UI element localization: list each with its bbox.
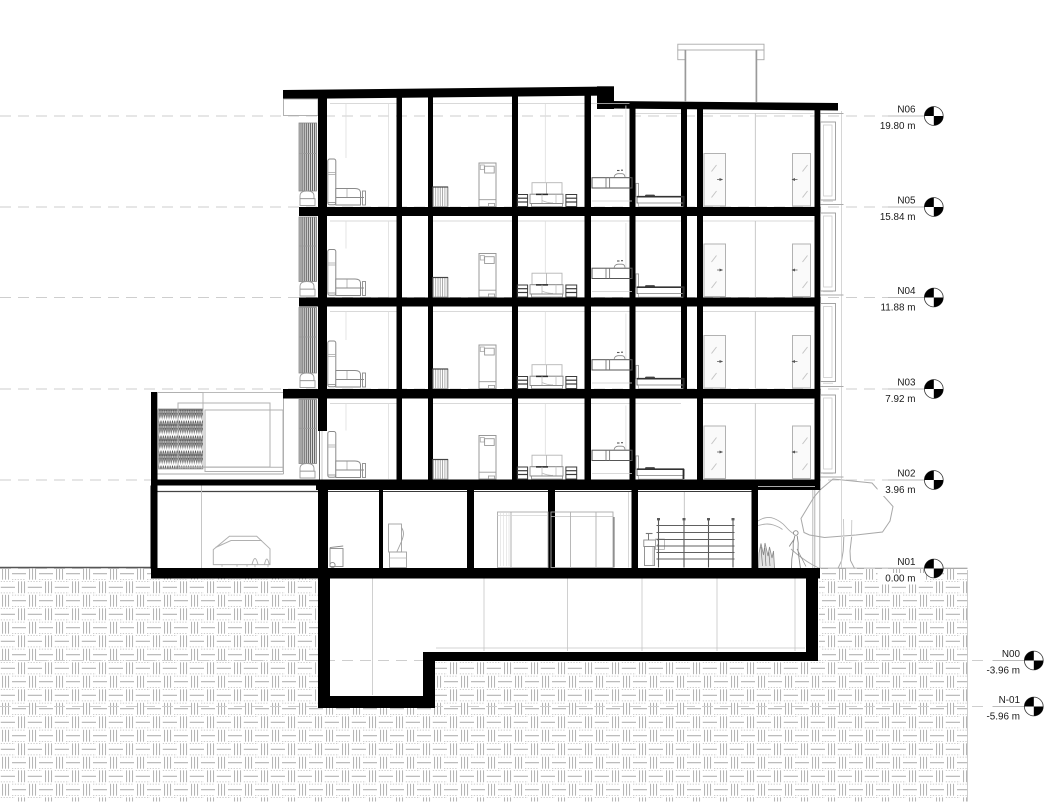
svg-text:N05: N05 [897, 196, 916, 207]
svg-text:N01: N01 [897, 557, 916, 568]
svg-text:N06: N06 [897, 105, 916, 116]
svg-text:N02: N02 [897, 469, 915, 480]
svg-text:19.80 m: 19.80 m [880, 121, 916, 132]
svg-text:-5.96 m: -5.96 m [987, 711, 1020, 722]
svg-text:11.88 m: 11.88 m [881, 302, 916, 313]
svg-text:0.00 m: 0.00 m [885, 573, 915, 584]
svg-text:15.84 m: 15.84 m [880, 212, 916, 223]
svg-text:N-01: N-01 [999, 695, 1021, 706]
svg-text:-3.96 m: -3.96 m [987, 665, 1020, 676]
svg-text:N00: N00 [1002, 649, 1021, 660]
svg-text:N03: N03 [897, 378, 916, 389]
svg-text:7.92 m: 7.92 m [885, 394, 915, 405]
svg-text:N04: N04 [897, 286, 916, 297]
svg-text:3.96 m: 3.96 m [885, 485, 915, 496]
